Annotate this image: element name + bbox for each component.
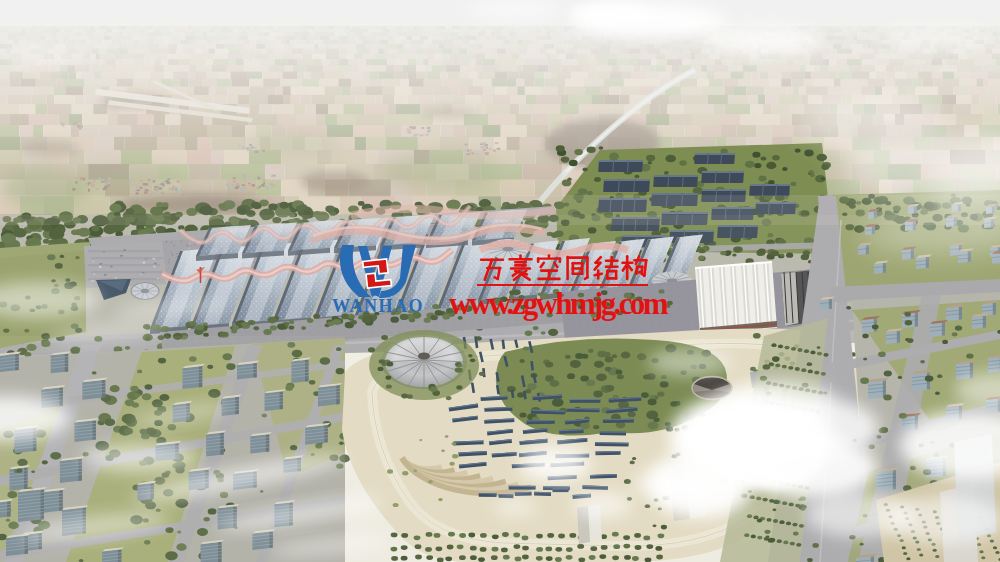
svg-text:WANHAO: WANHAO xyxy=(332,296,424,316)
svg-text:www.zgwhmjg.com: www.zgwhmjg.com xyxy=(449,286,669,321)
